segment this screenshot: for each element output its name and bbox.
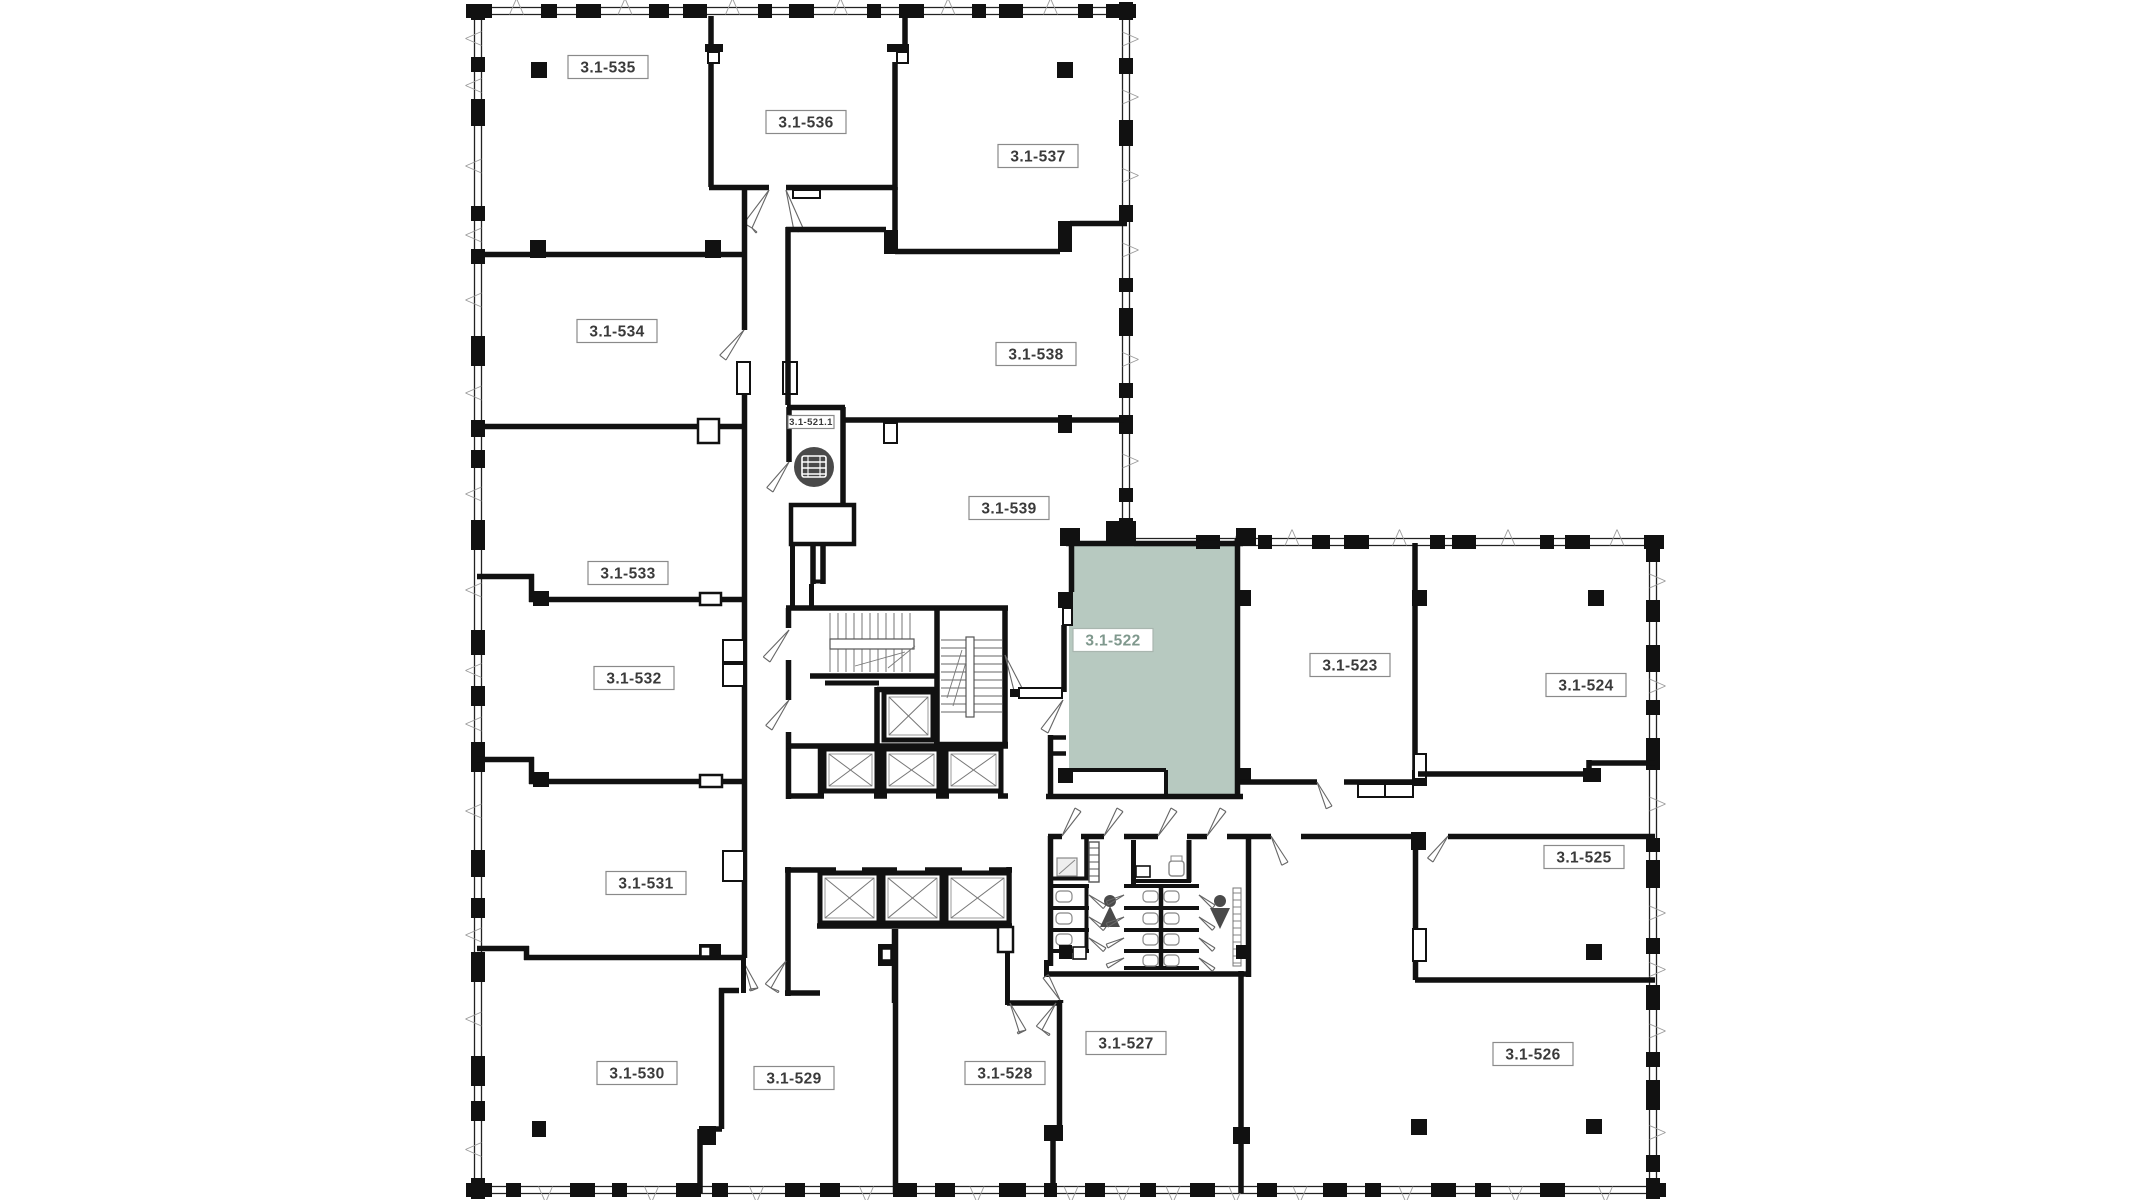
svg-text:3.1-529: 3.1-529 bbox=[766, 1070, 821, 1087]
svg-text:3.1-521.1: 3.1-521.1 bbox=[789, 417, 833, 428]
svg-text:3.1-534: 3.1-534 bbox=[589, 323, 644, 340]
svg-text:3.1-530: 3.1-530 bbox=[609, 1065, 664, 1082]
svg-text:3.1-526: 3.1-526 bbox=[1505, 1046, 1560, 1063]
svg-text:3.1-533: 3.1-533 bbox=[600, 565, 655, 582]
svg-text:3.1-537: 3.1-537 bbox=[1010, 148, 1065, 165]
svg-text:3.1-528: 3.1-528 bbox=[977, 1065, 1032, 1082]
svg-text:3.1-524: 3.1-524 bbox=[1558, 677, 1613, 694]
svg-text:3.1-527: 3.1-527 bbox=[1098, 1035, 1153, 1052]
svg-text:3.1-531: 3.1-531 bbox=[618, 875, 673, 892]
svg-text:3.1-523: 3.1-523 bbox=[1322, 657, 1377, 674]
svg-text:3.1-522: 3.1-522 bbox=[1085, 632, 1140, 649]
svg-text:3.1-538: 3.1-538 bbox=[1008, 346, 1063, 363]
svg-text:3.1-535: 3.1-535 bbox=[580, 59, 635, 76]
svg-text:3.1-536: 3.1-536 bbox=[778, 114, 833, 131]
svg-text:3.1-532: 3.1-532 bbox=[606, 670, 661, 687]
svg-text:3.1-525: 3.1-525 bbox=[1556, 849, 1611, 866]
svg-text:3.1-539: 3.1-539 bbox=[981, 500, 1036, 517]
